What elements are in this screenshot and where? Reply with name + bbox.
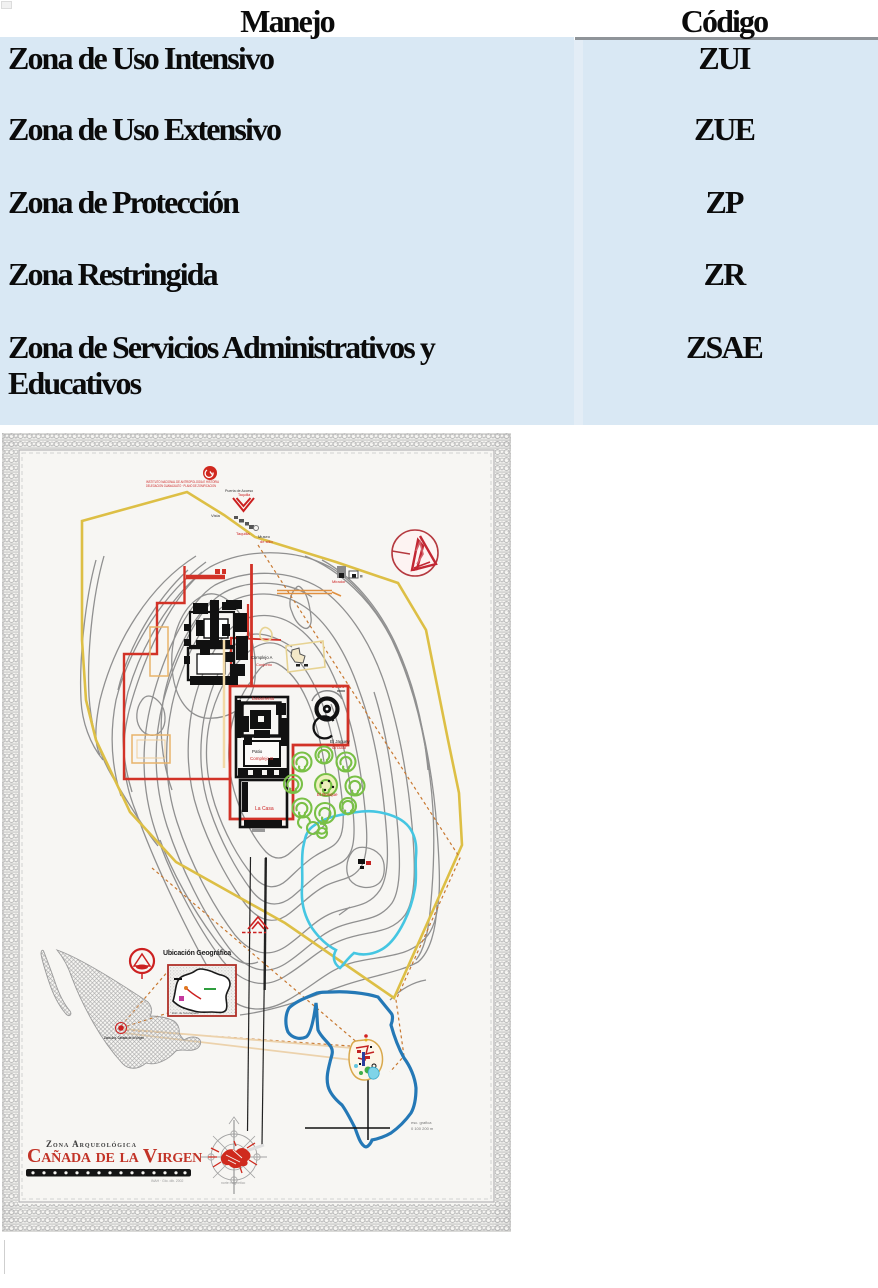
svg-text:INAH · Gto. dib. 2002: INAH · Gto. dib. 2002	[151, 1179, 184, 1183]
svg-text:de sitio: de sitio	[260, 539, 273, 544]
svg-text:Mirador: Mirador	[332, 579, 346, 584]
svg-text:norte magnetico: norte magnetico	[221, 1181, 245, 1185]
svg-text:Zona Arq. Cañada de la Virgen: Zona Arq. Cañada de la Virgen	[104, 1036, 144, 1040]
svg-text:Complejo A: Complejo A	[251, 655, 273, 660]
svg-text:La Casa: La Casa	[255, 806, 274, 812]
svg-text:Edo. de Guanajuato: Edo. de Guanajuato	[172, 1011, 199, 1015]
svg-text:basamento: basamento	[252, 696, 275, 701]
svg-text:Conjunto: Conjunto	[256, 662, 273, 667]
svg-text:Ubicación Geográfica: Ubicación Geográfica	[163, 950, 231, 957]
svg-text:El Jaguey: El Jaguey	[330, 739, 351, 744]
svg-text:Taquilla: Taquilla	[238, 493, 250, 497]
svg-text:Patio: Patio	[252, 749, 263, 754]
svg-text:Cañada de la Virgen: Cañada de la Virgen	[27, 1145, 202, 1167]
svg-text:esc. grafica: esc. grafica	[411, 1120, 432, 1125]
svg-text:DELEGACION GUANAJUATO · PLANO: DELEGACION GUANAJUATO · PLANO DE ZONIFIC…	[146, 483, 216, 488]
svg-text:El Bosque: El Bosque	[317, 792, 338, 797]
svg-text:Taquilla: Taquilla	[236, 531, 250, 536]
svg-text:0 100 200 m: 0 100 200 m	[411, 1126, 434, 1131]
svg-text:Complejo B: Complejo B	[250, 756, 273, 761]
svg-text:Vista: Vista	[211, 513, 221, 518]
